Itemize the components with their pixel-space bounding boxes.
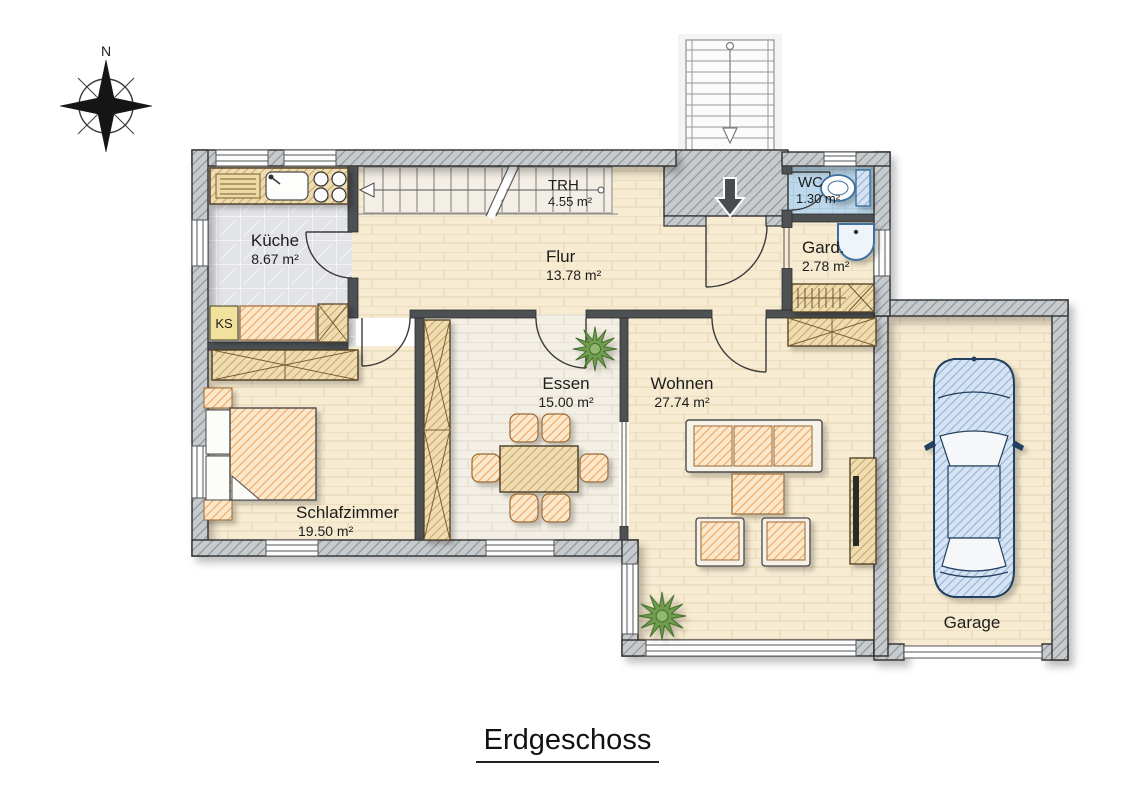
label-essen: Essen [542, 374, 589, 393]
coffee-table [732, 474, 784, 514]
label-garage: Garage [944, 613, 1001, 632]
car-rear-window [942, 538, 1006, 571]
window [284, 150, 336, 166]
label-gard: Gard. [802, 238, 845, 257]
car-roof [948, 466, 1000, 538]
area-flur: 13.78 m² [546, 267, 602, 283]
dining-chair [542, 414, 570, 442]
label-fridge: KS [215, 316, 233, 331]
pillow [206, 410, 232, 454]
area-kueche: 8.67 m² [251, 251, 299, 267]
label-wohnen: Wohnen [650, 374, 713, 393]
kitchen-counter [210, 168, 348, 204]
sofa [686, 420, 822, 472]
area-essen: 15.00 m² [538, 394, 594, 410]
exterior-staircase [678, 34, 782, 154]
armchair [696, 518, 744, 566]
entrance-porch [664, 150, 788, 226]
pillow [206, 456, 232, 500]
area-wc: 1.30 m² [796, 191, 841, 206]
area-schlafzimmer: 19.50 m² [298, 523, 354, 539]
dining-chair [510, 414, 538, 442]
label-schlafzimmer: Schlafzimmer [296, 503, 399, 522]
compass-star [60, 60, 152, 152]
gard-wardrobe [792, 284, 874, 312]
garage-door [904, 646, 1042, 658]
compass-rose: N [60, 43, 152, 152]
dining-chair [472, 454, 500, 482]
window [824, 152, 856, 166]
window [622, 564, 638, 634]
label-wc: WC [798, 174, 823, 191]
label-kueche: Küche [251, 231, 299, 250]
interior-staircase [358, 162, 618, 218]
dining-chair [542, 494, 570, 522]
compass-north-label: N [101, 43, 111, 59]
area-trh: 4.55 m² [548, 194, 593, 209]
wohnen-wardrobe [788, 318, 876, 346]
label-flur: Flur [546, 247, 576, 266]
window [874, 230, 890, 276]
area-wohnen: 27.74 m² [654, 394, 710, 410]
window [192, 220, 208, 266]
armchair [762, 518, 810, 566]
tv-sideboard [850, 458, 876, 564]
nightstand [204, 500, 232, 520]
area-gard: 2.78 m² [802, 258, 850, 274]
essen-wall-wardrobe [424, 320, 450, 540]
label-trh: TRH [548, 177, 579, 194]
window [266, 540, 318, 556]
window [646, 640, 856, 656]
nightstand [204, 388, 232, 408]
tv-icon [853, 476, 859, 546]
dining-chair [510, 494, 538, 522]
floor-title-text: Erdgeschoss [476, 724, 660, 763]
floorplan-svg: N [0, 0, 1135, 800]
window [486, 540, 554, 556]
window [216, 150, 268, 166]
dining-table [500, 446, 578, 492]
bedroom-wardrobe [212, 350, 358, 380]
kitchen-lower-counter [240, 306, 316, 340]
car [924, 357, 1024, 598]
floor-title: Erdgeschoss [0, 724, 1135, 763]
car-windshield [940, 431, 1008, 466]
bed [204, 388, 316, 520]
kitchen-cabinet [318, 304, 348, 342]
dining-chair [580, 454, 608, 482]
floorplan-canvas: N [0, 0, 1135, 800]
